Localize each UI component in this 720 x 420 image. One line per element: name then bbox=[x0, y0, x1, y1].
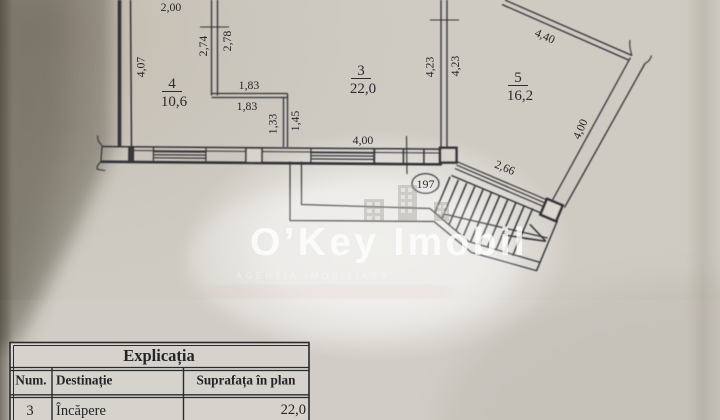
svg-text:10,6: 10,6 bbox=[161, 94, 188, 110]
svg-text:22,0: 22,0 bbox=[350, 81, 376, 97]
svg-text:1,83: 1,83 bbox=[237, 99, 258, 113]
svg-text:4,07: 4,07 bbox=[134, 57, 148, 78]
svg-text:16,2: 16,2 bbox=[507, 88, 533, 104]
svg-text:2,74: 2,74 bbox=[196, 36, 210, 57]
svg-text:3: 3 bbox=[26, 403, 33, 419]
svg-text:3: 3 bbox=[357, 63, 365, 79]
svg-text:2,78: 2,78 bbox=[220, 31, 234, 52]
svg-text:Explicația: Explicația bbox=[123, 346, 195, 366]
svg-text:4,23: 4,23 bbox=[448, 56, 462, 77]
svg-text:AGENTIA IMOBILIARA: AGENTIA IMOBILIARA bbox=[236, 271, 390, 281]
svg-text:1,83: 1,83 bbox=[239, 78, 260, 92]
svg-text:Încăpere: Încăpere bbox=[56, 402, 106, 419]
svg-text:197: 197 bbox=[417, 177, 435, 191]
svg-text:22,0: 22,0 bbox=[281, 402, 306, 418]
svg-text:4,00: 4,00 bbox=[353, 133, 374, 147]
svg-text:Destinație: Destinație bbox=[56, 373, 113, 389]
svg-text:4,23: 4,23 bbox=[423, 57, 437, 78]
svg-text:O’Key Imobil: O’Key Imobil bbox=[250, 221, 528, 264]
svg-text:5: 5 bbox=[514, 70, 522, 86]
svg-text:4: 4 bbox=[168, 76, 176, 92]
svg-text:1,45: 1,45 bbox=[288, 111, 302, 132]
svg-text:2,00: 2,00 bbox=[161, 0, 182, 14]
svg-text:Num.: Num. bbox=[15, 373, 46, 388]
svg-text:Suprafața în plan: Suprafața în plan bbox=[197, 373, 297, 389]
svg-text:1,33: 1,33 bbox=[266, 114, 280, 135]
